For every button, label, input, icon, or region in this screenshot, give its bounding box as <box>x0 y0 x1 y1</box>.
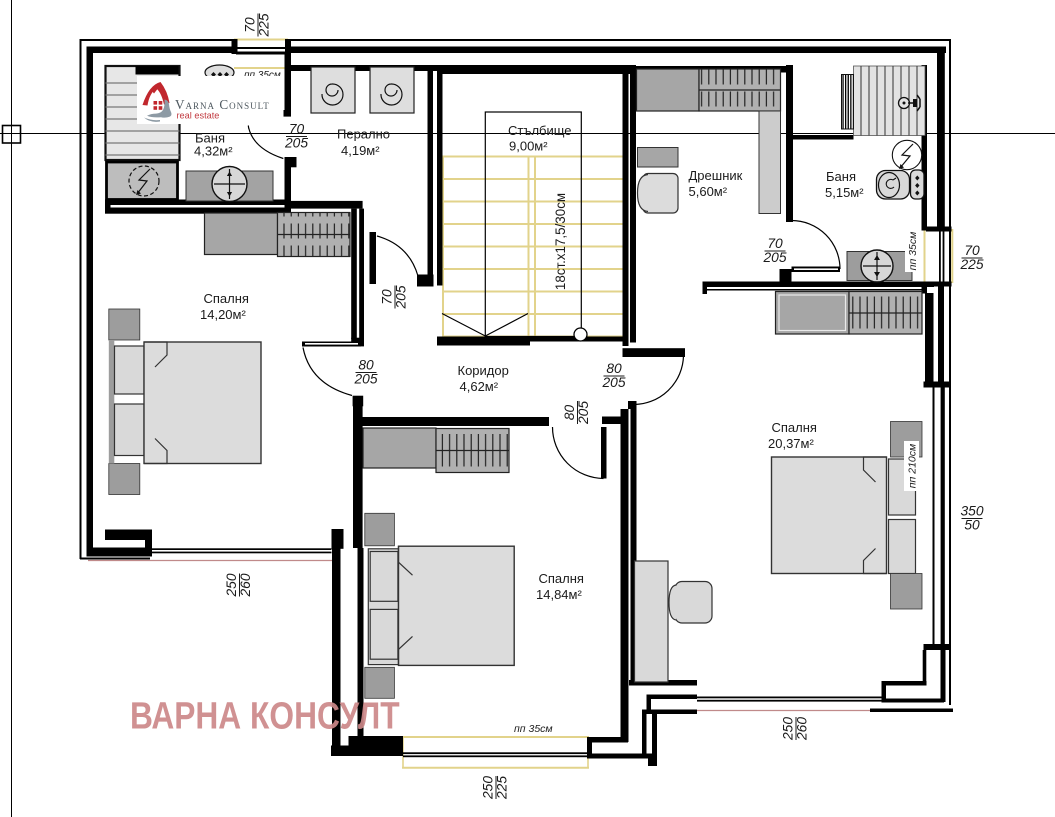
svg-text:5,15м²: 5,15м² <box>825 185 864 200</box>
svg-text:пп 35см: пп 35см <box>907 232 919 271</box>
svg-text:205: 205 <box>762 250 786 265</box>
svg-text:пп 210см: пп 210см <box>907 444 919 488</box>
svg-text:5,60м²: 5,60м² <box>689 184 728 199</box>
svg-text:4,62м²: 4,62м² <box>460 379 499 394</box>
svg-text:350: 350 <box>960 504 983 519</box>
svg-text:80: 80 <box>562 405 577 421</box>
svg-text:260: 260 <box>238 573 253 597</box>
svg-text:Спалня: Спалня <box>772 420 817 435</box>
svg-text:ВАРНА КОНСУЛТ: ВАРНА КОНСУЛТ <box>130 695 400 737</box>
svg-text:70: 70 <box>964 243 980 258</box>
svg-text:Спалня: Спалня <box>539 571 584 586</box>
svg-text:4,32м²: 4,32м² <box>194 144 233 159</box>
svg-text:225: 225 <box>257 13 272 37</box>
svg-text:80: 80 <box>358 358 374 373</box>
svg-text:real estate: real estate <box>177 110 220 120</box>
svg-text:225: 225 <box>495 776 510 800</box>
svg-text:70: 70 <box>767 236 783 251</box>
svg-text:Стълбище: Стълбище <box>508 123 572 138</box>
svg-text:205: 205 <box>353 372 377 387</box>
svg-text:70: 70 <box>243 17 258 33</box>
svg-text:9,00м²: 9,00м² <box>509 139 548 154</box>
svg-text:260: 260 <box>795 717 810 741</box>
svg-text:205: 205 <box>576 401 591 425</box>
svg-text:80: 80 <box>606 361 622 376</box>
svg-text:18ст.х17,5/30см: 18ст.х17,5/30см <box>553 193 568 290</box>
svg-text:Спалня: Спалня <box>204 291 249 306</box>
svg-text:4,19м²: 4,19м² <box>341 143 380 158</box>
svg-text:пп 35см: пп 35см <box>514 723 553 735</box>
svg-text:50: 50 <box>964 518 980 533</box>
svg-text:250: 250 <box>224 573 239 597</box>
svg-text:Перално: Перално <box>337 127 390 142</box>
svg-text:70: 70 <box>380 289 395 305</box>
svg-text:Дрешник: Дрешник <box>689 168 743 183</box>
svg-text:250: 250 <box>481 776 496 800</box>
svg-text:225: 225 <box>959 257 983 272</box>
svg-text:205: 205 <box>394 285 409 309</box>
svg-text:14,20м²: 14,20м² <box>200 307 246 322</box>
svg-text:Коридор: Коридор <box>458 363 509 378</box>
svg-text:70: 70 <box>289 122 305 137</box>
svg-text:14,84м²: 14,84м² <box>536 587 582 602</box>
svg-text:250: 250 <box>781 717 796 741</box>
svg-text:Баня: Баня <box>826 169 856 184</box>
svg-text:205: 205 <box>284 136 308 151</box>
svg-text:205: 205 <box>601 375 625 390</box>
svg-text:20,37м²: 20,37м² <box>768 436 814 451</box>
